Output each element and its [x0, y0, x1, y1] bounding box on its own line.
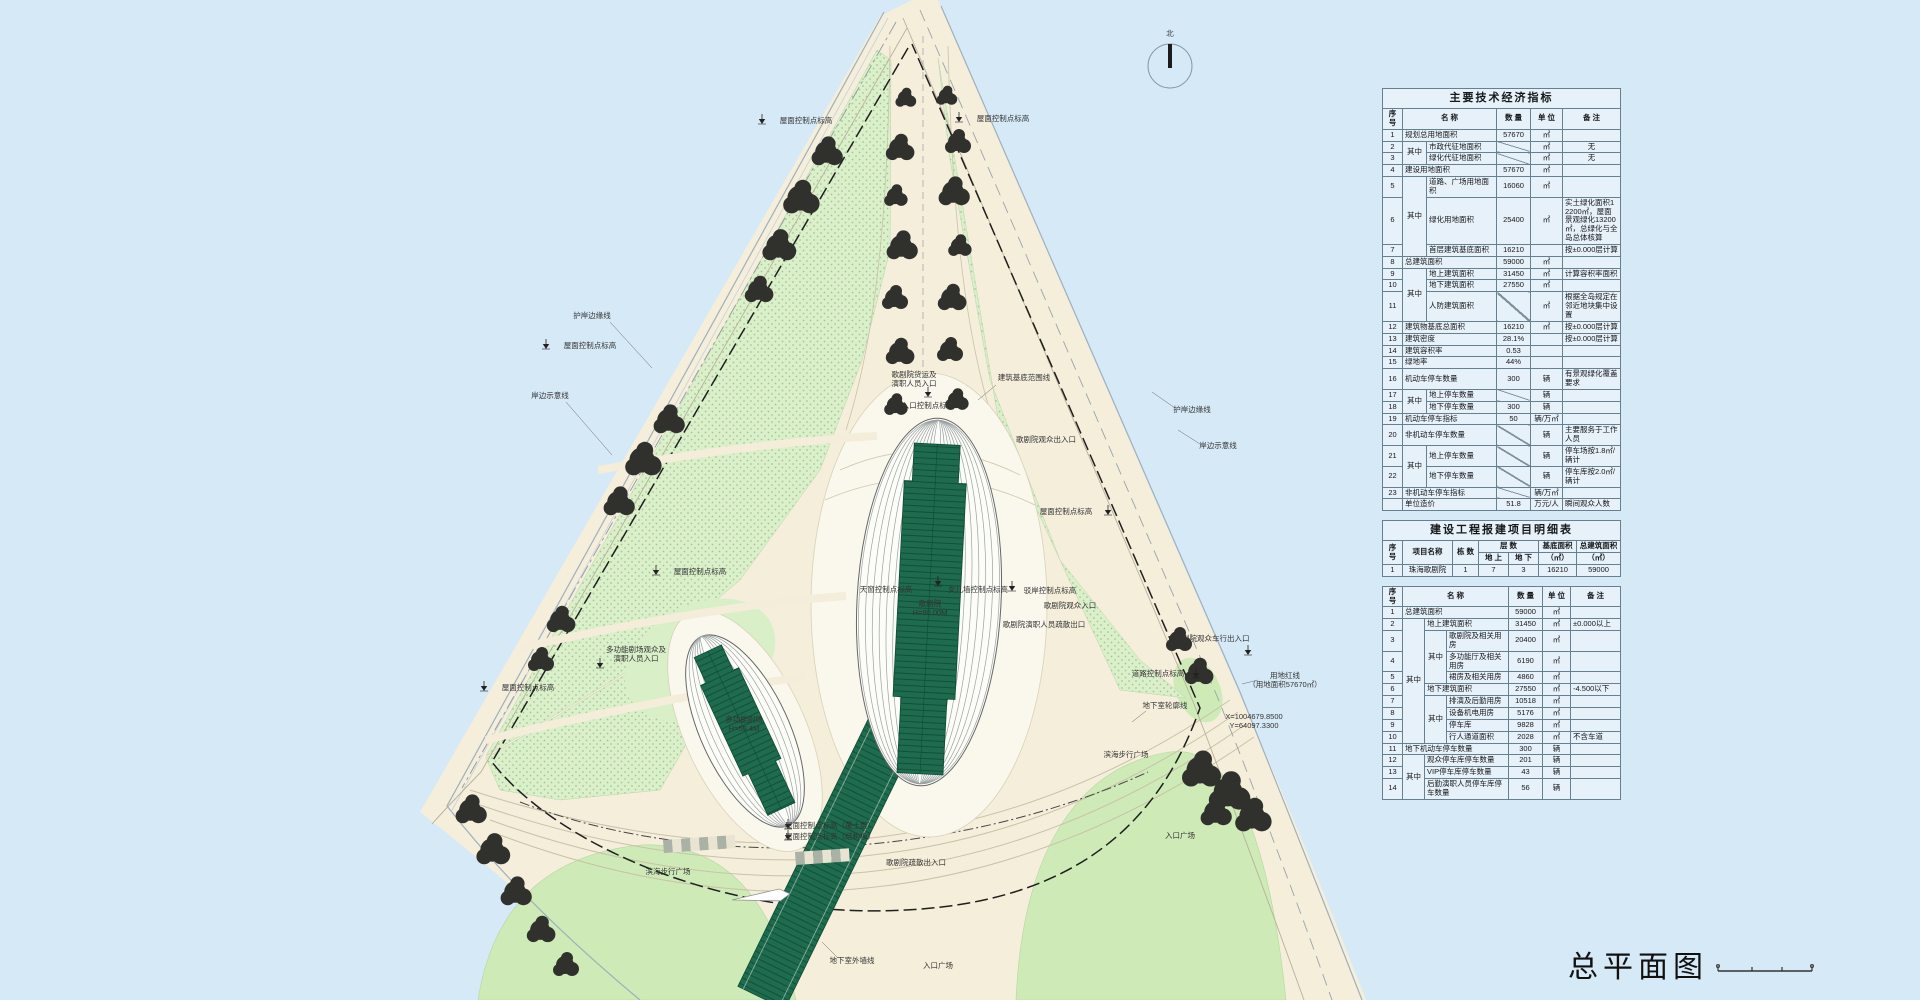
table-cell	[1571, 631, 1621, 652]
table-cell: 3	[1383, 631, 1403, 652]
table-cell: 9	[1383, 268, 1403, 280]
table-cell	[1563, 401, 1621, 413]
table-cell	[1563, 280, 1621, 292]
table-cell	[1563, 129, 1621, 141]
plan-label: 入口控制点标高	[902, 400, 955, 410]
table-cell: ±0.000以上	[1571, 619, 1621, 631]
table-cell: 地上停车数量	[1427, 446, 1497, 467]
table-cell: 2	[1383, 619, 1403, 631]
table-cell: 绿地率	[1403, 357, 1497, 369]
table-cell: 6	[1383, 197, 1403, 244]
table-cell: 序 号	[1383, 541, 1403, 565]
plan-label: 地下室外墙线	[830, 955, 875, 965]
table-cell	[1383, 499, 1403, 511]
table-cell: 43	[1509, 767, 1543, 779]
plan-label: 护岸边缘线	[573, 310, 611, 320]
table-cell: 1	[1383, 564, 1403, 576]
table-cell: 5176	[1509, 707, 1543, 719]
table-cell	[1571, 743, 1621, 755]
table-cell: 排演及后勤用房	[1447, 696, 1509, 708]
table-cell	[1531, 345, 1563, 357]
table-cell	[1497, 487, 1531, 499]
plan-label: 女儿墙控制点标高	[948, 584, 1008, 594]
table-cell: 机动车停车指标	[1403, 413, 1497, 425]
table-cell: 11	[1383, 292, 1403, 322]
table-cell: ㎡	[1543, 619, 1571, 631]
table-cell: 6190	[1509, 651, 1543, 672]
table-cell	[1571, 755, 1621, 767]
table-cell: 8	[1383, 707, 1403, 719]
plan-label: 滨海步行广场	[1104, 749, 1149, 759]
plan-label: 地下室轮廓线	[1143, 700, 1188, 710]
table-cell: 歌剧院及相关用房	[1447, 631, 1509, 652]
north-needle	[1168, 44, 1172, 68]
table-cell: 数 量	[1509, 586, 1543, 607]
table-cell: 无	[1563, 153, 1621, 165]
plan-label: 多功能剧场H=55.4M	[725, 714, 763, 733]
table-cell: 27550	[1497, 280, 1531, 292]
table-cell	[1571, 779, 1621, 800]
table-cell: 16210	[1497, 244, 1531, 256]
table-cell: 59000	[1497, 256, 1531, 268]
table-cell	[1497, 292, 1531, 322]
table-cell: ㎡	[1531, 280, 1563, 292]
table-cell: 1	[1453, 564, 1479, 576]
table-cell: 17	[1383, 389, 1403, 401]
table-cell: 1	[1383, 607, 1403, 619]
table-cell: 人防建筑面积	[1427, 292, 1497, 322]
plan-label: 入口广场	[923, 960, 953, 970]
table-cell: 辆	[1543, 767, 1571, 779]
table-cell: 25400	[1497, 197, 1531, 244]
table-cell: 单位造价	[1403, 499, 1497, 511]
table-cell: 按±0.000层计算	[1563, 244, 1621, 256]
table-cell: 59000	[1509, 607, 1543, 619]
table-title-cell: 主要技术经济指标	[1383, 89, 1621, 109]
table-cell: 规划总用地面积	[1403, 129, 1497, 141]
plan-label: 屋面控制点标高	[564, 340, 617, 350]
table-cell: 其中	[1403, 141, 1427, 165]
plan-label: 屋面控制点标高	[1040, 506, 1093, 516]
table-cell: 万元/人	[1531, 499, 1563, 511]
drawing-title: 总平面图	[1568, 950, 1708, 985]
table-cell: VIP停车库停车数量	[1425, 767, 1509, 779]
table-cell: （㎡）	[1539, 553, 1577, 565]
table-cell: ㎡	[1543, 719, 1571, 731]
table-cell: 12	[1383, 755, 1403, 767]
table-cell: 辆	[1531, 369, 1563, 390]
table-cell	[1497, 446, 1531, 467]
table-cell: 辆	[1531, 389, 1563, 401]
table-cell	[1571, 707, 1621, 719]
table-cell: 201	[1509, 755, 1543, 767]
table-cell: ㎡	[1543, 631, 1571, 652]
table-cell: 备 注	[1571, 586, 1621, 607]
table-cell: ㎡	[1531, 268, 1563, 280]
table-cell: 地下停车数量	[1427, 466, 1497, 487]
site-plan-drawing: 屋面控制点标高屋面控制点标高屋面控制点标高屋面控制点标高屋面控制点标高屋面控制点…	[0, 0, 1920, 1000]
table-cell	[1563, 389, 1621, 401]
table-cell: ㎡	[1531, 153, 1563, 165]
table-cell: 建筑密度	[1403, 333, 1497, 345]
north-label: 北	[1166, 29, 1174, 38]
table-cell: 地上停车数量	[1427, 389, 1497, 401]
table-cell: 21	[1383, 446, 1403, 467]
table-cell: ㎡	[1543, 731, 1571, 743]
table-cell: 裙房及相关用房	[1447, 672, 1509, 684]
table-cell: 计算容积率面积	[1563, 268, 1621, 280]
table-cell: 27550	[1509, 684, 1543, 696]
area-breakdown-table: 序 号名 称数 量单 位备 注1总建筑面积59000㎡2其中地上建筑面积3145…	[1382, 586, 1621, 800]
table-cell	[1531, 333, 1563, 345]
plan-label: 歌剧院观众车行出入口	[1175, 633, 1250, 643]
table-cell: 地下建筑面积	[1427, 280, 1497, 292]
table-cell: 道路、广场用地面积	[1427, 177, 1497, 198]
table-cell: 4860	[1509, 672, 1543, 684]
table-cell: 其中	[1403, 619, 1425, 743]
table-cell: 9	[1383, 719, 1403, 731]
table-cell: 4	[1383, 651, 1403, 672]
plan-label: 多功能剧场观众及演职人员入口	[606, 644, 666, 663]
table-cell	[1571, 651, 1621, 672]
table-cell: 其中	[1403, 755, 1425, 799]
table-cell: 10518	[1509, 696, 1543, 708]
table-cell: 名 称	[1403, 108, 1497, 129]
table-cell: 3	[1509, 564, 1539, 576]
table-cell: 绿化用地面积	[1427, 197, 1497, 244]
table-cell: 设备机电用房	[1447, 707, 1509, 719]
tables-panel: 主要技术经济指标序 号名 称数 量单 位备 注1规划总用地面积57670㎡2其中…	[1382, 88, 1620, 809]
table-cell: 22	[1383, 466, 1403, 487]
plan-label: 歌剧院演职人员疏散出口	[1003, 619, 1086, 629]
plan-label: 驳岸控制点标高	[1024, 585, 1077, 595]
title-block: 总平面图	[1568, 942, 1832, 986]
table-cell	[1497, 389, 1531, 401]
plan-label: 天窗控制点标高	[860, 584, 913, 594]
main-indicators-table: 主要技术经济指标序 号名 称数 量单 位备 注1规划总用地面积57670㎡2其中…	[1382, 88, 1621, 511]
table-cell: 2	[1383, 141, 1403, 153]
table-cell: 辆	[1543, 779, 1571, 800]
table-cell: 56	[1509, 779, 1543, 800]
table-cell: ㎡	[1543, 707, 1571, 719]
table-cell	[1563, 256, 1621, 268]
table-cell	[1571, 696, 1621, 708]
plan-label: 屋面控制点标高（覆土层）	[785, 820, 875, 830]
table-cell: 总建筑面积	[1403, 607, 1509, 619]
table-cell: 6	[1383, 684, 1403, 696]
table-cell: -4.500以下	[1571, 684, 1621, 696]
table-cell: 多功能厅及相关用房	[1447, 651, 1509, 672]
table-cell: 建筑容积率	[1403, 345, 1497, 357]
plan-label: 岸边示意线	[531, 390, 569, 400]
table-cell: 观众停车库停车数量	[1425, 755, 1509, 767]
project-registration-table: 建设工程报建项目明细表序 号项目名称栋 数层 数基底面积总建筑面积地 上地 下（…	[1382, 520, 1621, 577]
plan-label: 岸边示意线	[1199, 440, 1237, 450]
table-cell: 地下停车数量	[1427, 401, 1497, 413]
plan-label: 屋面控制点标高（结构板）	[785, 831, 875, 841]
table-cell: 辆	[1531, 466, 1563, 487]
table-cell: 2028	[1509, 731, 1543, 743]
table-cell: 9828	[1509, 719, 1543, 731]
table-cell: 16	[1383, 369, 1403, 390]
plan-label: 护岸边缘线	[1173, 404, 1211, 414]
table-cell: ㎡	[1531, 256, 1563, 268]
table-cell	[1571, 607, 1621, 619]
plan-label: 屋面控制点标高	[674, 566, 727, 576]
table-cell	[1563, 357, 1621, 369]
table-cell: ㎡	[1543, 696, 1571, 708]
plan-label: 屋面控制点标高	[780, 115, 833, 125]
table-cell: 瞬间观众人数	[1563, 499, 1621, 511]
table-cell: 51.8	[1497, 499, 1531, 511]
table-cell: 4	[1383, 165, 1403, 177]
table-cell: 数 量	[1497, 108, 1531, 129]
table-cell: 非机动车停车数量	[1403, 425, 1497, 446]
table-cell: 7	[1383, 696, 1403, 708]
table-cell: 16210	[1497, 321, 1531, 333]
table-cell: 其中	[1403, 268, 1427, 321]
plan-label: 入口广场	[1165, 830, 1195, 840]
table-cell: 31450	[1497, 268, 1531, 280]
table-cell: 无	[1563, 141, 1621, 153]
table-cell: ㎡	[1531, 177, 1563, 198]
table-cell: 16210	[1539, 564, 1577, 576]
table-cell	[1563, 165, 1621, 177]
table-cell: 50	[1497, 413, 1531, 425]
table-cell: 地上建筑面积	[1425, 619, 1509, 631]
table-cell: 机动车停车数量	[1403, 369, 1497, 390]
table-cell	[1531, 244, 1563, 256]
table-cell: 市政代征地面积	[1427, 141, 1497, 153]
table-cell: 总建筑面积	[1577, 541, 1621, 553]
table-cell: 18	[1383, 401, 1403, 413]
table-cell: 44%	[1497, 357, 1531, 369]
table-cell: 名 称	[1403, 586, 1509, 607]
table-cell: 31450	[1509, 619, 1543, 631]
table-cell: 28.1%	[1497, 333, 1531, 345]
table-cell: 其中	[1403, 446, 1427, 487]
plan-label: 歌剧院疏散出入口	[886, 857, 946, 867]
plan-label: 歌剧院观众入口	[1044, 600, 1097, 610]
table-cell: 5	[1383, 177, 1403, 198]
table-cell: 备 注	[1563, 108, 1621, 129]
table-cell: 10	[1383, 731, 1403, 743]
table-cell: 辆	[1543, 743, 1571, 755]
table-cell: 57670	[1497, 129, 1531, 141]
table-cell: 辆/万㎡	[1531, 413, 1563, 425]
table-cell: 7	[1383, 244, 1403, 256]
table-cell: 实土绿化面积12200㎡，屋面景观绿化13200㎡，总绿化与全岛总体核算	[1563, 197, 1621, 244]
table-cell: 20	[1383, 425, 1403, 446]
table-cell	[1571, 719, 1621, 731]
table-cell: 19	[1383, 413, 1403, 425]
plan-label: 歌剧院观众出入口	[1016, 434, 1076, 444]
table-cell: 停车库按2.0㎡/辆计	[1563, 466, 1621, 487]
table-cell: 停车库	[1447, 719, 1509, 731]
table-cell: 地上建筑面积	[1427, 268, 1497, 280]
table-cell: 栋 数	[1453, 541, 1479, 565]
table-cell: 13	[1383, 333, 1403, 345]
table-cell: 根据全岛规定在邻近地块集中设置	[1563, 292, 1621, 322]
table-cell: 12	[1383, 321, 1403, 333]
table-cell: 单 位	[1531, 108, 1563, 129]
table-cell: 地 下	[1509, 553, 1539, 565]
table-cell	[1571, 767, 1621, 779]
table-cell: 辆/万㎡	[1531, 487, 1563, 499]
table-cell: ㎡	[1531, 129, 1563, 141]
table-cell: 20400	[1509, 631, 1543, 652]
table-cell: ㎡	[1543, 684, 1571, 696]
table-cell: ㎡	[1543, 672, 1571, 684]
table-cell: 建筑物基底总面积	[1403, 321, 1497, 333]
site-plan-sheet: { "north_label": "北", "drawing_title": "…	[0, 0, 1920, 1000]
table-cell	[1563, 177, 1621, 198]
table-cell: 1	[1383, 129, 1403, 141]
table-cell: 其中	[1425, 696, 1447, 743]
table-cell	[1531, 357, 1563, 369]
table-cell: ㎡	[1543, 607, 1571, 619]
table-cell: 辆	[1531, 446, 1563, 467]
plan-label: 滨海步行广场	[646, 866, 691, 876]
plan-label: X=1004679.8500Y=64097.3300	[1225, 712, 1282, 730]
table-cell: 0.53	[1497, 345, 1531, 357]
table-cell	[1563, 345, 1621, 357]
table-cell: 绿化代征地面积	[1427, 153, 1497, 165]
table-cell	[1563, 413, 1621, 425]
table-cell: 序 号	[1383, 108, 1403, 129]
table-cell: 辆	[1543, 755, 1571, 767]
table-cell: ㎡	[1531, 321, 1563, 333]
table-cell: 珠海歌剧院	[1403, 564, 1453, 576]
table-cell: 行人通道面积	[1447, 731, 1509, 743]
table-cell: 停车场按1.8㎡/辆计	[1563, 446, 1621, 467]
table-cell: 300	[1497, 401, 1531, 413]
table-cell: 16060	[1497, 177, 1531, 198]
table-cell	[1497, 466, 1531, 487]
table-cell: 13	[1383, 767, 1403, 779]
table-cell: 不含车道	[1571, 731, 1621, 743]
table-cell: 序 号	[1383, 586, 1403, 607]
table-cell: 建设用地面积	[1403, 165, 1497, 177]
table-cell	[1497, 141, 1531, 153]
table-cell: 15	[1383, 357, 1403, 369]
table-cell: 14	[1383, 779, 1403, 800]
table-cell: 其中	[1403, 389, 1427, 413]
table-cell: 非机动车停车指标	[1403, 487, 1497, 499]
table-cell: ㎡	[1531, 197, 1563, 244]
table-cell: 单 位	[1543, 586, 1571, 607]
table-cell: 14	[1383, 345, 1403, 357]
table-cell: 有景观绿化覆盖要求	[1563, 369, 1621, 390]
plan-label: 歌剧院货运及演职人员入口	[892, 369, 937, 388]
table-cell: （㎡）	[1577, 553, 1621, 565]
table-cell: 地下机动车停车数量	[1403, 743, 1509, 755]
table-cell: 基底面积	[1539, 541, 1577, 553]
table-cell: 其中	[1425, 631, 1447, 684]
table-cell: ㎡	[1543, 651, 1571, 672]
table-cell: 11	[1383, 743, 1403, 755]
table-cell: 后勤演职人员停车库停车数量	[1425, 779, 1509, 800]
table-cell: ㎡	[1531, 292, 1563, 322]
table-cell: 57670	[1497, 165, 1531, 177]
table-cell: 23	[1383, 487, 1403, 499]
table-cell: 按±0.000层计算	[1563, 333, 1621, 345]
table-cell: 项目名称	[1403, 541, 1453, 565]
plan-label: 屋面控制点标高	[977, 113, 1030, 123]
table-cell: ㎡	[1531, 165, 1563, 177]
table-cell	[1571, 672, 1621, 684]
table-cell: 7	[1479, 564, 1509, 576]
table-cell: 主要服务于工作人员	[1563, 425, 1621, 446]
table-title-cell: 建设工程报建项目明细表	[1383, 521, 1621, 541]
table-cell: 辆	[1531, 425, 1563, 446]
table-cell: 层 数	[1479, 541, 1539, 553]
table-cell: 按±0.000层计算	[1563, 321, 1621, 333]
plan-label: 道路控制点标高	[1132, 668, 1185, 678]
table-cell: ㎡	[1531, 141, 1563, 153]
plan-label: 屋面控制点标高	[502, 682, 555, 692]
table-cell: 总建筑面积	[1403, 256, 1497, 268]
table-cell: 300	[1509, 743, 1543, 755]
table-cell	[1497, 153, 1531, 165]
table-cell: 地下建筑面积	[1425, 684, 1509, 696]
table-cell: 59000	[1577, 564, 1621, 576]
scale-bar	[1712, 961, 1832, 977]
table-cell	[1563, 487, 1621, 499]
table-cell: 3	[1383, 153, 1403, 165]
table-cell: 300	[1497, 369, 1531, 390]
table-cell	[1497, 425, 1531, 446]
table-cell: 辆	[1531, 401, 1563, 413]
table-cell: 8	[1383, 256, 1403, 268]
table-cell: 地 上	[1479, 553, 1509, 565]
table-cell: 10	[1383, 280, 1403, 292]
table-cell: 首层建筑基底面积	[1427, 244, 1497, 256]
table-cell: 5	[1383, 672, 1403, 684]
plan-label: 建筑基底范围线	[998, 372, 1051, 382]
table-cell: 其中	[1403, 177, 1427, 257]
